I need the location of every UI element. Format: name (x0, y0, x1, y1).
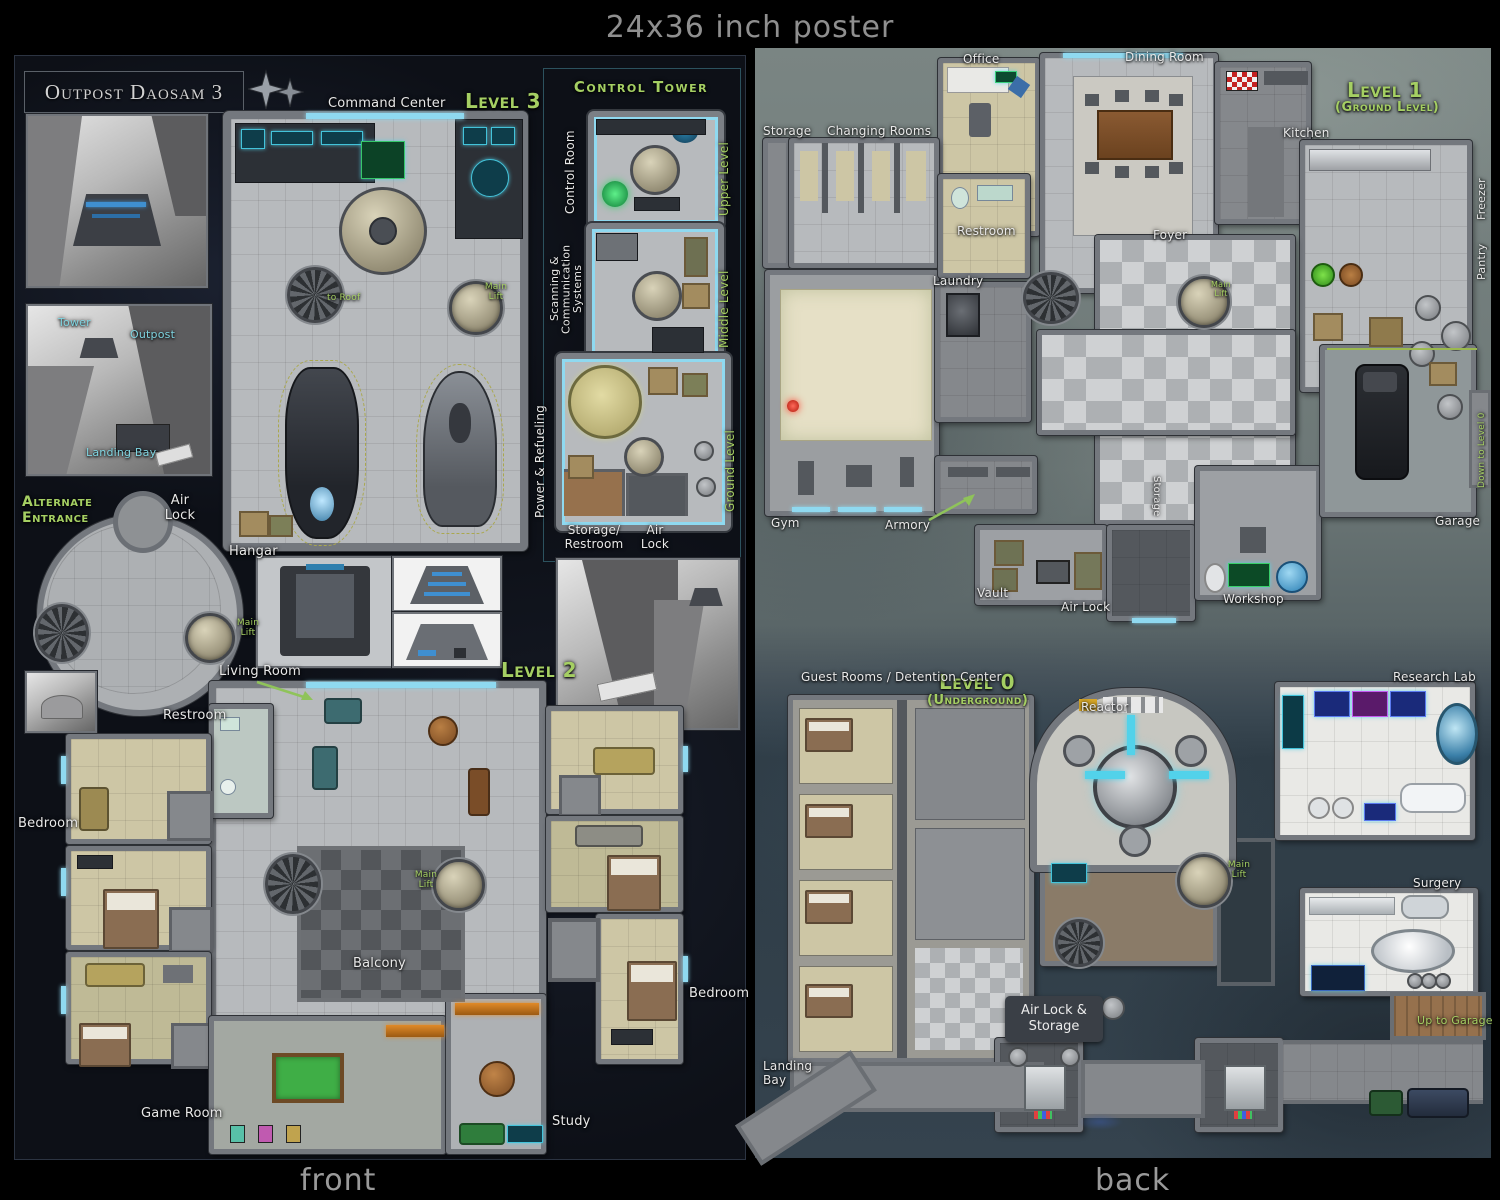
inset-label-landing-bay: Landing Bay (86, 446, 156, 459)
living-room-arrow-icon (253, 678, 317, 704)
level2-heading: Level 2 (501, 658, 577, 682)
room-study (446, 994, 546, 1154)
back-poster: Level 1 (Ground Level) Office Dining Roo… (755, 48, 1491, 1158)
vehicle-small (1369, 1090, 1403, 1116)
label-storage-side: Storage (1151, 476, 1162, 528)
cliff-render-inset: Tower Outpost Landing Bay (26, 304, 212, 476)
mini-map-middle-level (586, 223, 724, 365)
label-dining-room: Dining Room (1125, 50, 1204, 64)
dome-render-inset (25, 671, 97, 733)
label-workshop: Workshop (1223, 592, 1284, 606)
label-balcony: Balcony (353, 956, 406, 971)
label-bedroom-right: Bedroom (689, 986, 749, 1001)
inset-label-outpost: Outpost (130, 328, 175, 341)
ensuite-right (548, 918, 600, 982)
top-caption: 24x36 inch poster (0, 10, 1500, 45)
level3-heading: Level 3 (465, 89, 541, 113)
label-bedroom-left: Bedroom (18, 816, 78, 831)
label-scanning-communication: Scanning & Communication Systems (549, 224, 584, 354)
alarm-light (787, 400, 799, 412)
label-middle-level: Middle Level (717, 228, 731, 348)
label-upper-level: Upper Level (717, 116, 731, 216)
label-study: Study (552, 1114, 591, 1129)
label-storage-restroom: Storage/ Restroom (563, 524, 625, 552)
label-command-center: Command Center (328, 96, 446, 111)
room-bedroom-left-3 (66, 952, 211, 1064)
label-air-lock-tower: Air Lock (637, 524, 673, 552)
room-reactor (1030, 688, 1236, 872)
artist-watermark (1077, 1114, 1123, 1130)
inset-label-tower: Tower (58, 316, 91, 329)
front-poster: Outpost Daosam 3 Tower Outpost Landing B… (14, 55, 746, 1160)
room-bedroom-left-1 (66, 734, 211, 844)
star-emblem-icon (248, 69, 304, 113)
room-airlock-l1 (1107, 525, 1195, 621)
label-main-lift-level3: Main Lift (481, 282, 511, 303)
label-reactor: Reactor (1081, 700, 1129, 714)
room-guest-block (788, 695, 1034, 1063)
back-caption: back (1095, 1163, 1170, 1198)
level1-subheading: (Ground Level) (1335, 100, 1439, 115)
armory-arrow-icon (923, 490, 979, 524)
room-storage-top (763, 138, 791, 268)
room-laundry (935, 282, 1031, 422)
label-up-to-garage: Up to Garage (1417, 1014, 1493, 1027)
room-workshop (1195, 466, 1321, 600)
room-research-lab (1275, 682, 1475, 840)
room-game-room (209, 1016, 446, 1154)
corridor-airlock (1081, 1060, 1205, 1118)
label-surgery: Surgery (1413, 876, 1461, 890)
outpost-render-inset (26, 114, 208, 288)
truck (1407, 1088, 1469, 1118)
control-tower-title: Control Tower (543, 78, 739, 96)
label-down-to-level0: Down to Level 0 (1477, 392, 1487, 488)
label-changing-rooms: Changing Rooms (827, 124, 931, 138)
room-tiled-top (1215, 62, 1311, 224)
level1-heading: Level 1 (1347, 78, 1423, 102)
label-research-lab: Research Lab (1393, 670, 1476, 684)
label-gym: Gym (771, 516, 800, 530)
label-pantry: Pantry (1475, 224, 1488, 280)
tower-elevation-inset-1 (392, 556, 502, 612)
label-main-lift-alt: Main Lift (233, 618, 263, 639)
level0-subheading: (Underground) (927, 693, 1028, 708)
label-office: Office (963, 52, 999, 66)
label-guest-rooms: Guest Rooms / Detention Center (801, 670, 1002, 684)
label-airlock-storage: Air Lock & Storage (1005, 1003, 1103, 1034)
room-gym (765, 270, 939, 516)
alternate-entrance-title: Alternate Entrance (22, 494, 114, 526)
label-power-refueling: Power & Refueling (533, 358, 547, 518)
label-vault: Vault (977, 586, 1008, 600)
poster-sheet: 24x36 inch poster Outpost Daosam 3 Tower (0, 0, 1500, 1200)
label-living-room: Living Room (219, 664, 301, 679)
label-storage-top: Storage (763, 124, 811, 138)
label-control-room: Control Room (563, 118, 577, 214)
room-bedroom-right-1 (546, 706, 683, 814)
label-ground-level: Ground Level (723, 362, 737, 512)
label-main-lift-foyer: Main Lift (1207, 280, 1235, 298)
label-hangar: Hangar (229, 544, 278, 559)
label-kitchen: Kitchen (1283, 126, 1330, 140)
mini-map-ground-level (556, 353, 731, 531)
mini-map-upper-level (588, 111, 724, 229)
room-machine-right (1195, 1038, 1283, 1132)
label-restroom-level2: Restroom (163, 708, 227, 723)
label-freezer: Freezer (1475, 160, 1488, 220)
hangar-topview-inset (256, 556, 394, 668)
cliff-render-inset-2 (556, 558, 740, 730)
poster-title: Outpost Daosam 3 (45, 80, 223, 105)
room-command-center-level3 (223, 111, 528, 551)
poster-title-box: Outpost Daosam 3 (24, 71, 244, 113)
label-restroom-l1: Restroom (957, 224, 1016, 238)
label-game-room: Game Room (141, 1106, 223, 1121)
airlock-storage-badge: Air Lock & Storage (1005, 996, 1103, 1042)
room-garage (1320, 345, 1476, 517)
room-bedroom-right-3 (596, 914, 683, 1064)
front-caption: front (300, 1163, 376, 1198)
tower-elevation-inset-2 (392, 612, 502, 668)
label-foyer: Foyer (1153, 228, 1187, 242)
label-garage: Garage (1435, 514, 1480, 528)
label-air-lock-alt: Air Lock (160, 494, 200, 524)
label-main-lift-l0: Main Lift (1223, 860, 1255, 881)
room-bedroom-right-2 (546, 816, 683, 912)
label-main-lift-level2: Main Lift (411, 870, 441, 891)
label-laundry: Laundry (933, 274, 983, 288)
label-landing-bay: Landing Bay (763, 1060, 823, 1088)
room-bedroom-left-2 (66, 846, 211, 950)
label-to-roof: to Roof (327, 293, 360, 303)
label-air-lock-l1: Air Lock (1061, 600, 1110, 614)
room-surgery (1300, 888, 1478, 996)
room-changing (789, 138, 939, 268)
